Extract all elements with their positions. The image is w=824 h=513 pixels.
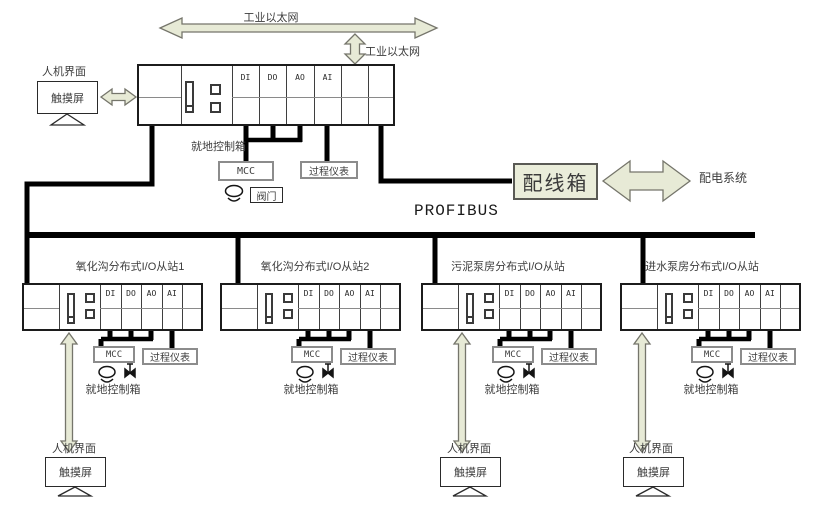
module-label-ao: AO bbox=[141, 289, 162, 298]
cpu-switch-icon bbox=[283, 293, 293, 303]
module-label-ai: AI bbox=[314, 73, 341, 82]
station-1-touchscreen-box: 触摸屏 bbox=[45, 457, 106, 487]
rack-divider bbox=[182, 285, 183, 329]
pump-icon-station-3 bbox=[498, 367, 514, 383]
rack-divider bbox=[581, 285, 582, 329]
station-3-title: 污泥泵房分布式I/O从站 bbox=[433, 261, 583, 274]
wiring-box: 配线箱 bbox=[513, 163, 598, 200]
station-2-rack: DI DO AO AI bbox=[220, 283, 401, 331]
profibus-bus-line bbox=[25, 232, 755, 238]
rack-divider bbox=[368, 66, 369, 124]
rack-divider bbox=[181, 66, 182, 124]
rack-divider bbox=[59, 285, 60, 329]
cpu-switch-icon bbox=[484, 293, 494, 303]
valve-icon-station-4 bbox=[723, 364, 733, 377]
station-4-title: 进水泵房分布式I/O从站 bbox=[627, 261, 777, 274]
hmi-link-arrow-station-4 bbox=[634, 333, 650, 452]
power-distribution-label: 配电系统 bbox=[699, 172, 747, 185]
diagram-canvas: 工业以太网 工业以太网 人机界面 触摸屏 DI DO AO AI 就地控制箱 M… bbox=[0, 0, 824, 513]
station-1-hmi-label: 人机界面 bbox=[52, 443, 96, 456]
rack-divider bbox=[780, 285, 781, 329]
station-3-rack: DI DO AO AI bbox=[421, 283, 602, 331]
module-label-di: DI bbox=[100, 289, 121, 298]
ethernet-label-drop: 工业以太网 bbox=[365, 46, 420, 59]
module-label-di: DI bbox=[698, 289, 719, 298]
module-label-ai: AI bbox=[162, 289, 182, 298]
rack-divider bbox=[100, 308, 201, 309]
pump-icon-main bbox=[226, 186, 243, 202]
local-control-label-main: 就地控制箱 bbox=[191, 141, 246, 154]
valve-icon-station-1 bbox=[125, 364, 135, 377]
station-2-local-control-label: 就地控制箱 bbox=[256, 384, 366, 397]
rack-divider bbox=[222, 308, 257, 309]
module-label-do: DO bbox=[520, 289, 540, 298]
module-label-ao: AO bbox=[339, 289, 360, 298]
power-distribution-arrow bbox=[603, 161, 690, 201]
cpu-switch-icon bbox=[210, 102, 221, 113]
station-1-local-control-label: 就地控制箱 bbox=[58, 384, 168, 397]
cpu-module-icon bbox=[466, 293, 474, 324]
module-label-di: DI bbox=[499, 289, 520, 298]
module-label-ai: AI bbox=[760, 289, 780, 298]
module-label-di: DI bbox=[298, 289, 319, 298]
hmi-label-top: 人机界面 bbox=[42, 66, 86, 79]
cpu-switch-icon bbox=[85, 293, 95, 303]
monitor-stand-icon-station-1 bbox=[58, 487, 91, 496]
station-4-touchscreen-box: 触摸屏 bbox=[623, 457, 684, 487]
touchscreen-box-top: 触摸屏 bbox=[37, 81, 98, 114]
rack-divider bbox=[257, 285, 258, 329]
cpu-slot-line bbox=[667, 316, 671, 318]
module-label-do: DO bbox=[719, 289, 739, 298]
connector-layer bbox=[0, 0, 824, 513]
monitor-stand-icon-top bbox=[51, 114, 84, 125]
module-label-do: DO bbox=[259, 73, 286, 82]
pump-icon-station-2 bbox=[297, 367, 313, 383]
valve-icon-station-2 bbox=[323, 364, 333, 377]
station-4-rack: DI DO AO AI bbox=[620, 283, 801, 331]
cpu-module-icon bbox=[67, 293, 75, 324]
station-3-process-instruments-box: 过程仪表 bbox=[541, 348, 597, 365]
station-2-title: 氧化沟分布式I/O从站2 bbox=[240, 261, 390, 274]
rack-divider bbox=[298, 308, 399, 309]
cpu-slot-line bbox=[187, 105, 192, 107]
rack-divider bbox=[698, 308, 799, 309]
monitor-stand-icon-station-4 bbox=[636, 487, 669, 496]
module-label-ao: AO bbox=[286, 73, 314, 82]
ethernet-drop-arrow bbox=[345, 34, 365, 64]
cpu-switch-icon bbox=[210, 84, 221, 95]
cpu-switch-icon bbox=[683, 293, 693, 303]
cpu-slot-line bbox=[69, 316, 73, 318]
module-label-ai: AI bbox=[360, 289, 380, 298]
station-1-process-instruments-box: 过程仪表 bbox=[142, 348, 198, 365]
station-1-title: 氧化沟分布式I/O从站1 bbox=[55, 261, 205, 274]
rack-divider bbox=[24, 308, 59, 309]
station-4-mcc-box: MCC bbox=[691, 346, 733, 363]
cpu-slot-line bbox=[468, 316, 472, 318]
cpu-switch-icon bbox=[484, 309, 494, 319]
cpu-switch-icon bbox=[85, 309, 95, 319]
rack-to-profibus-line bbox=[27, 126, 152, 233]
mcc-box-main: MCC bbox=[218, 161, 274, 181]
station-4-process-instruments-box: 过程仪表 bbox=[740, 348, 796, 365]
cpu-switch-icon bbox=[683, 309, 693, 319]
module-label-ao: AO bbox=[540, 289, 561, 298]
main-plc-rack: DI DO AO AI bbox=[137, 64, 395, 126]
cpu-module-icon bbox=[665, 293, 673, 324]
station-1-mcc-box: MCC bbox=[93, 346, 135, 363]
station-2-mcc-box: MCC bbox=[291, 346, 333, 363]
station-3-hmi-label: 人机界面 bbox=[447, 443, 491, 456]
module-label-do: DO bbox=[319, 289, 339, 298]
cpu-slot-line bbox=[267, 316, 271, 318]
ethernet-label-top: 工业以太网 bbox=[238, 12, 304, 25]
rack-divider bbox=[458, 285, 459, 329]
station-3-touchscreen-box: 触摸屏 bbox=[440, 457, 501, 487]
rack-to-wiringbox-line bbox=[381, 126, 512, 181]
rack-divider bbox=[622, 308, 657, 309]
cpu-module-icon bbox=[265, 293, 273, 324]
module-label-ai: AI bbox=[561, 289, 581, 298]
rack-divider bbox=[499, 308, 600, 309]
process-instruments-box-main: 过程仪表 bbox=[300, 161, 358, 179]
monitor-stand-icon-station-3 bbox=[453, 487, 486, 496]
cpu-switch-icon bbox=[283, 309, 293, 319]
pump-icon-station-1 bbox=[99, 367, 115, 383]
rack-divider bbox=[341, 66, 342, 124]
cpu-module-icon bbox=[185, 81, 194, 113]
station-3-mcc-box: MCC bbox=[492, 346, 534, 363]
valve-icon-station-3 bbox=[524, 364, 534, 377]
rack-divider bbox=[232, 97, 393, 98]
rack-divider bbox=[139, 97, 181, 98]
rack-divider bbox=[657, 285, 658, 329]
station-4-local-control-label: 就地控制箱 bbox=[656, 384, 766, 397]
pump-icon-station-4 bbox=[697, 367, 713, 383]
station-2-process-instruments-box: 过程仪表 bbox=[340, 348, 396, 365]
hmi-link-arrow-top bbox=[101, 89, 136, 105]
rack-divider bbox=[380, 285, 381, 329]
module-label-ao: AO bbox=[739, 289, 760, 298]
station-1-rack: DI DO AO AI bbox=[22, 283, 203, 331]
valve-box-main: 阀门 bbox=[250, 187, 283, 203]
station-4-hmi-label: 人机界面 bbox=[629, 443, 673, 456]
module-label-do: DO bbox=[121, 289, 141, 298]
module-label-di: DI bbox=[232, 73, 259, 82]
profibus-label: PROFIBUS bbox=[414, 202, 499, 220]
rack-divider bbox=[423, 308, 458, 309]
station-3-local-control-label: 就地控制箱 bbox=[457, 384, 567, 397]
